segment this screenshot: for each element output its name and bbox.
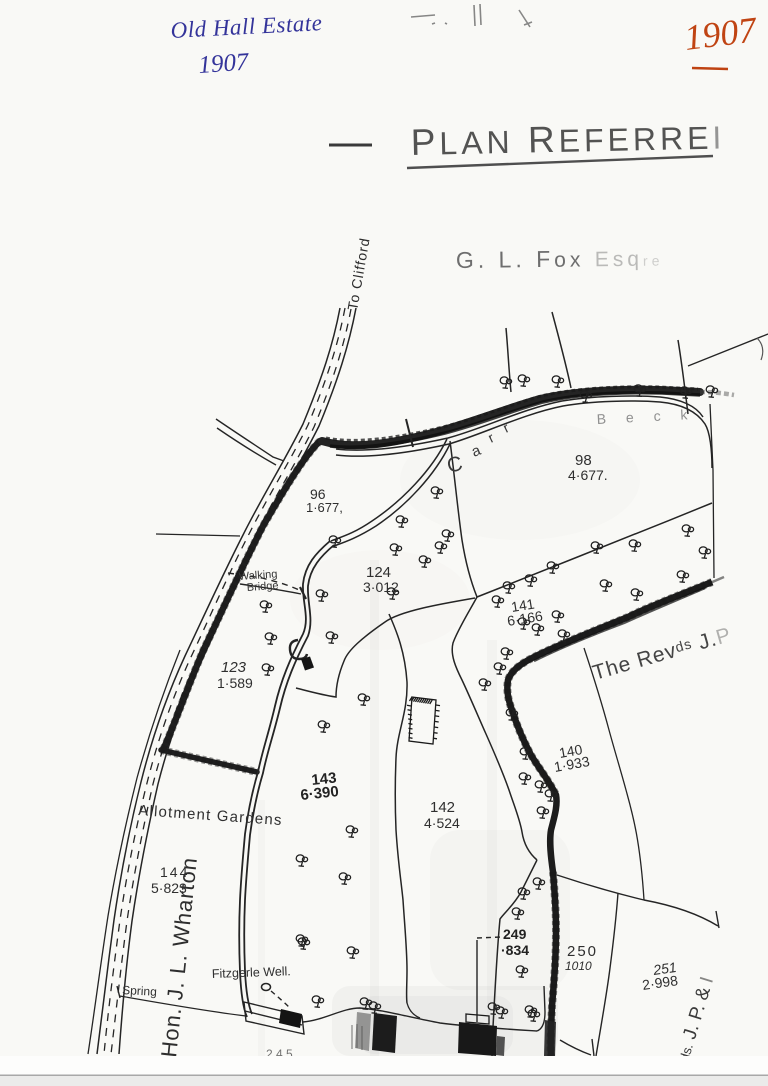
svg-text:4·524: 4·524 xyxy=(424,815,460,831)
svg-text:1010: 1010 xyxy=(565,959,592,973)
svg-text:250: 250 xyxy=(567,943,598,960)
svg-text:Bridge: Bridge xyxy=(246,580,279,594)
svg-text:4·677.: 4·677. xyxy=(568,467,608,483)
svg-text:1907: 1907 xyxy=(198,48,251,79)
svg-text:1·589: 1·589 xyxy=(217,675,253,691)
svg-text:Fitzgerle Well.: Fitzgerle Well. xyxy=(212,964,291,981)
svg-text:G. L. Fox Esqre: G. L. Fox Esqre xyxy=(456,244,664,273)
svg-text:·834: ·834 xyxy=(501,942,529,958)
svg-text:142: 142 xyxy=(430,799,455,816)
svg-text:249: 249 xyxy=(503,926,527,942)
svg-text:3·012: 3·012 xyxy=(363,579,399,595)
svg-text:Spring: Spring xyxy=(122,983,157,999)
svg-text:123: 123 xyxy=(221,659,247,676)
svg-text:1·677,: 1·677, xyxy=(306,500,343,515)
